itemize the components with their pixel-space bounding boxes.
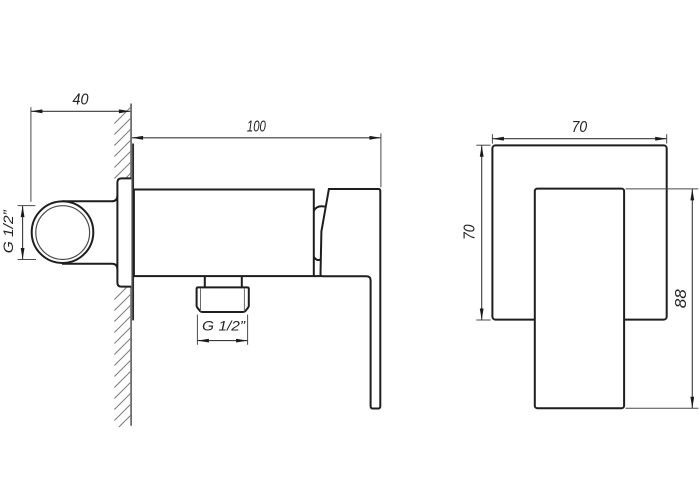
svg-text:G 1/2”: G 1/2” [202, 317, 246, 333]
svg-text:G 1/2”: G 1/2” [0, 209, 16, 253]
svg-text:100: 100 [247, 118, 266, 135]
svg-text:88: 88 [673, 289, 690, 308]
svg-text:70: 70 [462, 224, 479, 240]
svg-text:40: 40 [73, 92, 89, 109]
svg-text:70: 70 [572, 119, 588, 136]
